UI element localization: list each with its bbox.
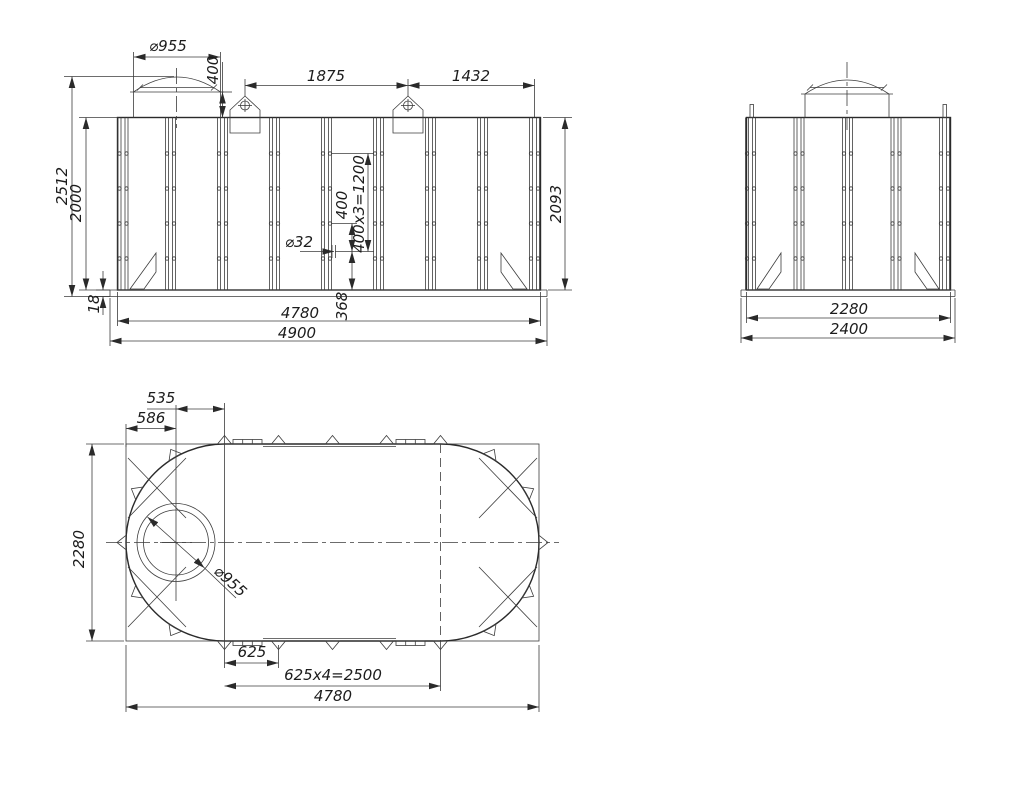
dim-front-hole-step: 400 [333, 191, 351, 220]
tank-three-view-drawing: ⌀955 400 1875 1432 2512 2000 18 400 400x… [0, 0, 1024, 791]
gusset [130, 253, 156, 289]
dim-front-shell-height: 2000 [67, 184, 85, 222]
side-lug-pins [750, 105, 947, 118]
front-stiffener-ribs [118, 118, 540, 291]
front-lifting-lugs [230, 96, 423, 133]
dim-front-hole-span: 400x3=1200 [350, 155, 368, 253]
dim-plan-anchor-span: 625x4=2500 [284, 666, 382, 684]
lug-pin [943, 105, 947, 118]
dim-plan-length: 4780 [314, 687, 352, 705]
dim-front-base-thickness: 18 [85, 294, 103, 313]
plan-view [106, 403, 559, 691]
lug-pin [750, 105, 754, 118]
dim-front-nozzle-dia: ⌀32 [285, 233, 313, 251]
gusset [501, 253, 527, 289]
front-shell-outline [118, 118, 541, 291]
dim-front-lug-to-edge: 1432 [452, 67, 490, 85]
dim-front-manhole-height: 400 [204, 56, 222, 85]
dim-plan-edge-to-manhole: 586 [137, 409, 166, 427]
dim-plan-width: 2280 [70, 530, 88, 568]
technical-drawing-sheet: ⌀955 400 1875 1432 2512 2000 18 400 400x… [0, 0, 1024, 791]
front-dimensions [64, 52, 572, 346]
side-view [741, 62, 955, 297]
dim-front-lug-spacing: 1875 [307, 67, 345, 85]
gusset [915, 253, 939, 289]
dim-plan-manhole-to-seam: 535 [147, 389, 176, 407]
side-gussets [757, 253, 939, 289]
side-stiffener-ribs [745, 118, 949, 291]
gusset [757, 253, 781, 289]
dim-front-shell-length: 4780 [281, 304, 319, 322]
side-baseplate [741, 290, 955, 297]
side-shell-outline [747, 118, 951, 291]
dim-side-shell-width: 2280 [830, 300, 868, 318]
dim-plan-manhole-dia: ⌀955 [210, 562, 250, 601]
dim-front-manhole-dia: ⌀955 [149, 37, 187, 55]
dim-front-bottom-offset: 368 [333, 292, 351, 321]
dim-plan-anchor-step: 625 [238, 643, 267, 661]
dim-side-base-width: 2400 [830, 320, 868, 338]
dim-front-base-length: 4900 [278, 324, 316, 342]
side-manhole [801, 62, 893, 130]
dim-front-right-height: 2093 [547, 185, 565, 223]
front-view [110, 68, 547, 297]
front-baseplate [110, 290, 547, 297]
